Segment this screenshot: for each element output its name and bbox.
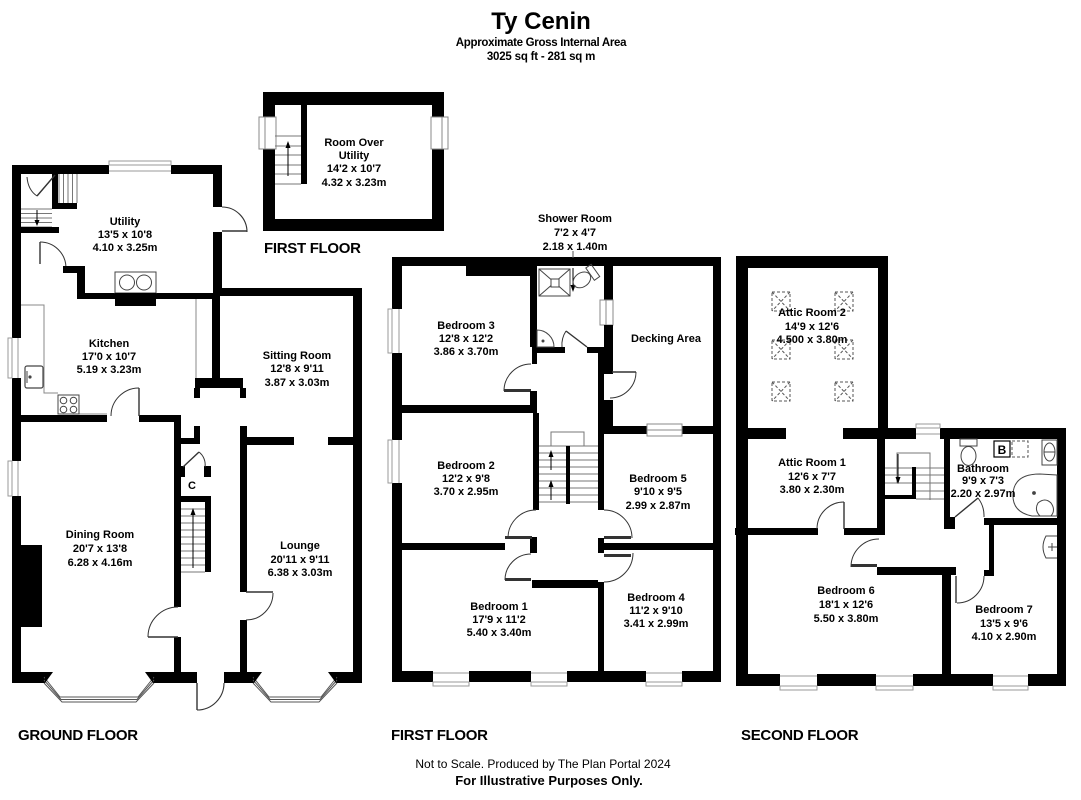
svg-text:Bedroom 4: Bedroom 4 (627, 592, 685, 604)
svg-text:3025 sq ft - 281 sq m: 3025 sq ft - 281 sq m (487, 51, 595, 63)
svg-text:3.80 x 2.30m: 3.80 x 2.30m (780, 484, 845, 496)
svg-text:7'2 x 4'7: 7'2 x 4'7 (554, 227, 596, 239)
svg-text:20'7 x 13'8: 20'7 x 13'8 (73, 543, 127, 555)
svg-text:Attic Room 1: Attic Room 1 (778, 457, 846, 469)
svg-text:GROUND FLOOR: GROUND FLOOR (18, 727, 138, 744)
svg-text:Room Over: Room Over (324, 137, 384, 149)
svg-text:3.87 x 3.03m: 3.87 x 3.03m (265, 377, 330, 389)
svg-text:Not to Scale. Produced by The: Not to Scale. Produced by The Plan Porta… (415, 757, 671, 771)
svg-text:5.40 x 3.40m: 5.40 x 3.40m (467, 627, 532, 639)
svg-text:For Illustrative Purposes Only: For Illustrative Purposes Only. (455, 773, 643, 788)
svg-text:SECOND FLOOR: SECOND FLOOR (741, 727, 859, 744)
svg-text:17'0 x 10'7: 17'0 x 10'7 (82, 351, 136, 363)
svg-text:13'5 x 9'6: 13'5 x 9'6 (980, 618, 1028, 630)
svg-text:5.19 x 3.23m: 5.19 x 3.23m (77, 364, 142, 376)
svg-text:20'11 x 9'11: 20'11 x 9'11 (270, 554, 329, 566)
svg-text:FIRST FLOOR: FIRST FLOOR (264, 240, 361, 257)
svg-text:6.28 x 4.16m: 6.28 x 4.16m (68, 557, 133, 569)
svg-text:3.70 x 2.95m: 3.70 x 2.95m (434, 486, 499, 498)
svg-text:Attic Room 2: Attic Room 2 (778, 307, 846, 319)
svg-text:Bedroom 5: Bedroom 5 (629, 473, 686, 485)
svg-text:14'9 x 12'6: 14'9 x 12'6 (785, 321, 839, 333)
svg-text:Approximate Gross Internal Are: Approximate Gross Internal Area (456, 37, 627, 49)
svg-text:Kitchen: Kitchen (89, 338, 130, 350)
svg-text:Shower Room: Shower Room (538, 213, 612, 225)
svg-text:4.500 x 3.80m: 4.500 x 3.80m (777, 334, 848, 346)
svg-text:3.86 x 3.70m: 3.86 x 3.70m (434, 346, 499, 358)
svg-text:Utility: Utility (339, 150, 370, 162)
svg-text:Ty Cenin: Ty Cenin (491, 8, 591, 35)
svg-text:4.10 x 2.90m: 4.10 x 2.90m (972, 631, 1037, 643)
svg-text:Bathroom: Bathroom (957, 463, 1009, 475)
svg-text:Bedroom 2: Bedroom 2 (437, 460, 494, 472)
svg-text:Utility: Utility (110, 216, 141, 228)
svg-text:9'9 x 7'3: 9'9 x 7'3 (962, 475, 1004, 487)
svg-text:Sitting Room: Sitting Room (263, 350, 332, 362)
svg-text:C: C (188, 480, 196, 492)
svg-text:12'2 x 9'8: 12'2 x 9'8 (442, 473, 490, 485)
svg-text:Dining Room: Dining Room (66, 529, 135, 541)
svg-text:11'2 x 9'10: 11'2 x 9'10 (629, 605, 683, 617)
svg-text:4.10 x 3.25m: 4.10 x 3.25m (93, 242, 158, 254)
svg-text:2.20 x 2.97m: 2.20 x 2.97m (951, 488, 1016, 500)
svg-text:Bedroom 7: Bedroom 7 (975, 604, 1032, 616)
svg-text:5.50 x 3.80m: 5.50 x 3.80m (814, 613, 879, 625)
svg-text:6.38 x 3.03m: 6.38 x 3.03m (268, 567, 333, 579)
svg-text:18'1 x 12'6: 18'1 x 12'6 (819, 599, 873, 611)
svg-text:3.41 x 2.99m: 3.41 x 2.99m (624, 618, 689, 630)
svg-text:FIRST FLOOR: FIRST FLOOR (391, 727, 488, 744)
svg-text:B: B (998, 443, 1007, 457)
svg-text:Bedroom 6: Bedroom 6 (817, 585, 874, 597)
svg-text:14'2 x 10'7: 14'2 x 10'7 (327, 163, 381, 175)
svg-text:Bedroom 1: Bedroom 1 (470, 601, 527, 613)
svg-text:9'10 x 9'5: 9'10 x 9'5 (634, 486, 682, 498)
svg-text:12'8 x 9'11: 12'8 x 9'11 (270, 363, 324, 375)
svg-text:12'8 x 12'2: 12'8 x 12'2 (439, 333, 493, 345)
svg-text:4.32 x 3.23m: 4.32 x 3.23m (322, 177, 387, 189)
svg-text:17'9 x 11'2: 17'9 x 11'2 (472, 614, 526, 626)
svg-text:12'6 x 7'7: 12'6 x 7'7 (788, 471, 836, 483)
svg-text:Decking Area: Decking Area (631, 333, 702, 345)
svg-text:2.99 x 2.87m: 2.99 x 2.87m (626, 500, 691, 512)
svg-text:13'5 x 10'8: 13'5 x 10'8 (98, 229, 152, 241)
svg-text:Bedroom 3: Bedroom 3 (437, 320, 494, 332)
svg-text:Lounge: Lounge (280, 540, 320, 552)
svg-text:2.18 x 1.40m: 2.18 x 1.40m (543, 241, 608, 253)
